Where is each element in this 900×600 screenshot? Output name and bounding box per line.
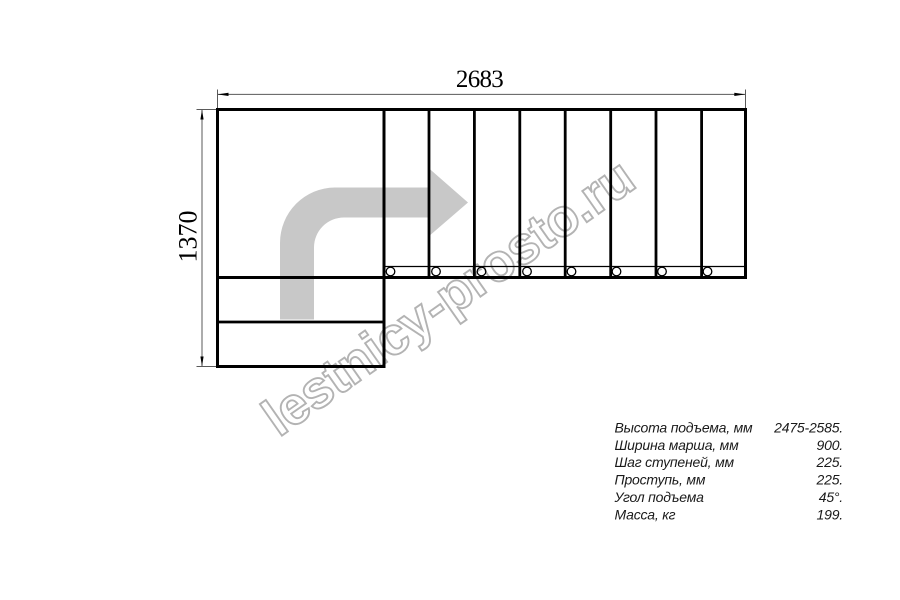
svg-text:Проступь, мм: Проступь, мм xyxy=(615,471,706,487)
svg-text:900.: 900. xyxy=(817,437,843,453)
svg-text:2475-2585.: 2475-2585. xyxy=(773,420,843,436)
svg-text:Угол подъема: Угол подъема xyxy=(614,489,705,505)
svg-text:1370: 1370 xyxy=(174,211,203,263)
svg-text:225.: 225. xyxy=(816,471,843,487)
svg-text:Шаг ступеней, мм: Шаг ступеней, мм xyxy=(615,454,735,470)
svg-text:Ширина марша, мм: Ширина марша, мм xyxy=(615,437,740,453)
svg-text:225.: 225. xyxy=(816,454,843,470)
svg-text:Высота подъема, мм: Высота подъема, мм xyxy=(615,420,754,436)
svg-text:2683: 2683 xyxy=(456,66,503,93)
svg-text:199.: 199. xyxy=(817,506,843,522)
svg-text:45°.: 45°. xyxy=(819,489,843,505)
svg-text:Масса, кг: Масса, кг xyxy=(615,506,676,522)
